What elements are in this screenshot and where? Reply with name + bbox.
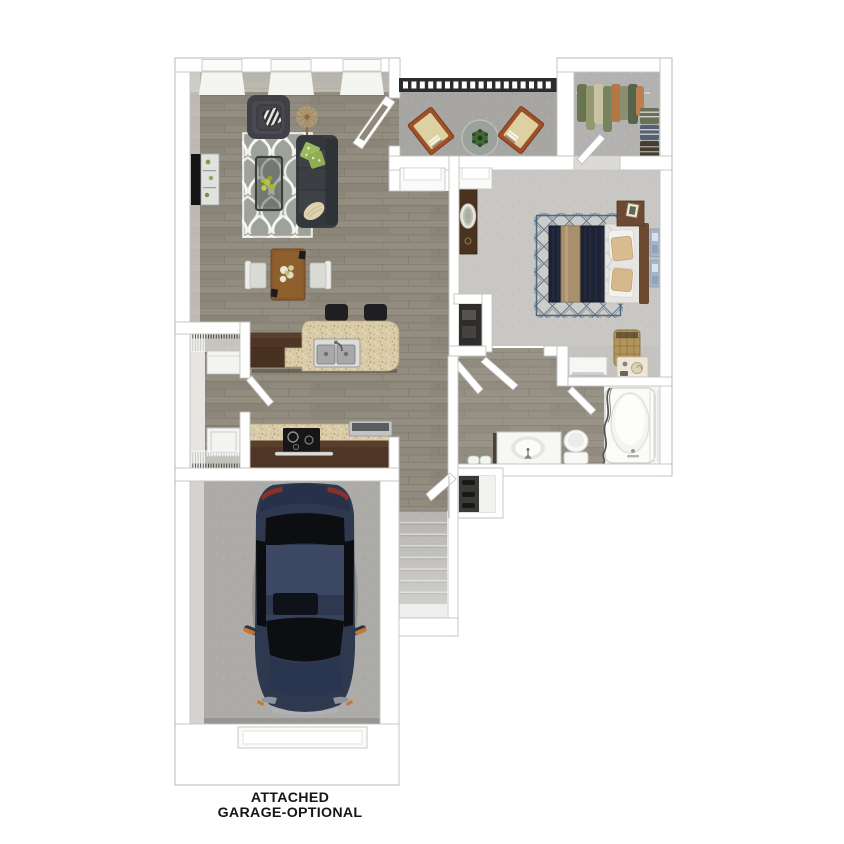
svg-text:ATTACHED: ATTACHED — [251, 790, 329, 806]
svg-text:GARAGE-OPTIONAL: GARAGE-OPTIONAL — [218, 805, 363, 821]
